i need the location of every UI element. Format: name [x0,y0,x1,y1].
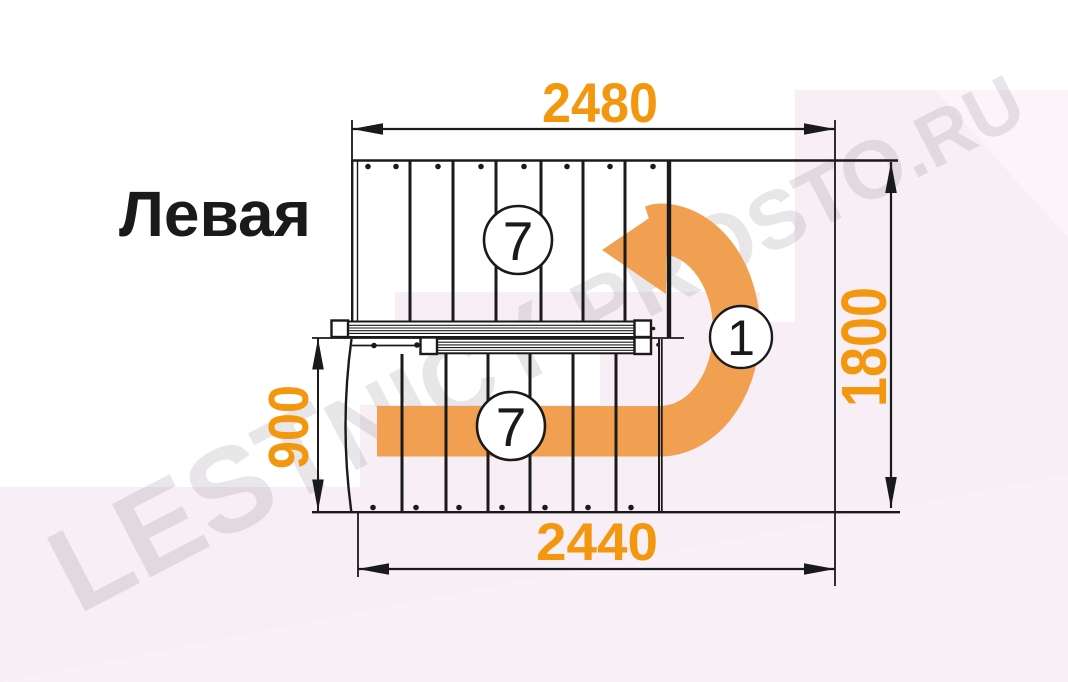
svg-text:Левая: Левая [119,178,311,250]
svg-text:1800: 1800 [828,287,900,407]
svg-text:7: 7 [496,396,527,458]
svg-text:1: 1 [727,310,755,366]
svg-text:2440: 2440 [536,513,658,572]
svg-text:7: 7 [503,210,534,272]
svg-text:2480: 2480 [542,71,658,134]
svg-text:900: 900 [257,385,321,469]
